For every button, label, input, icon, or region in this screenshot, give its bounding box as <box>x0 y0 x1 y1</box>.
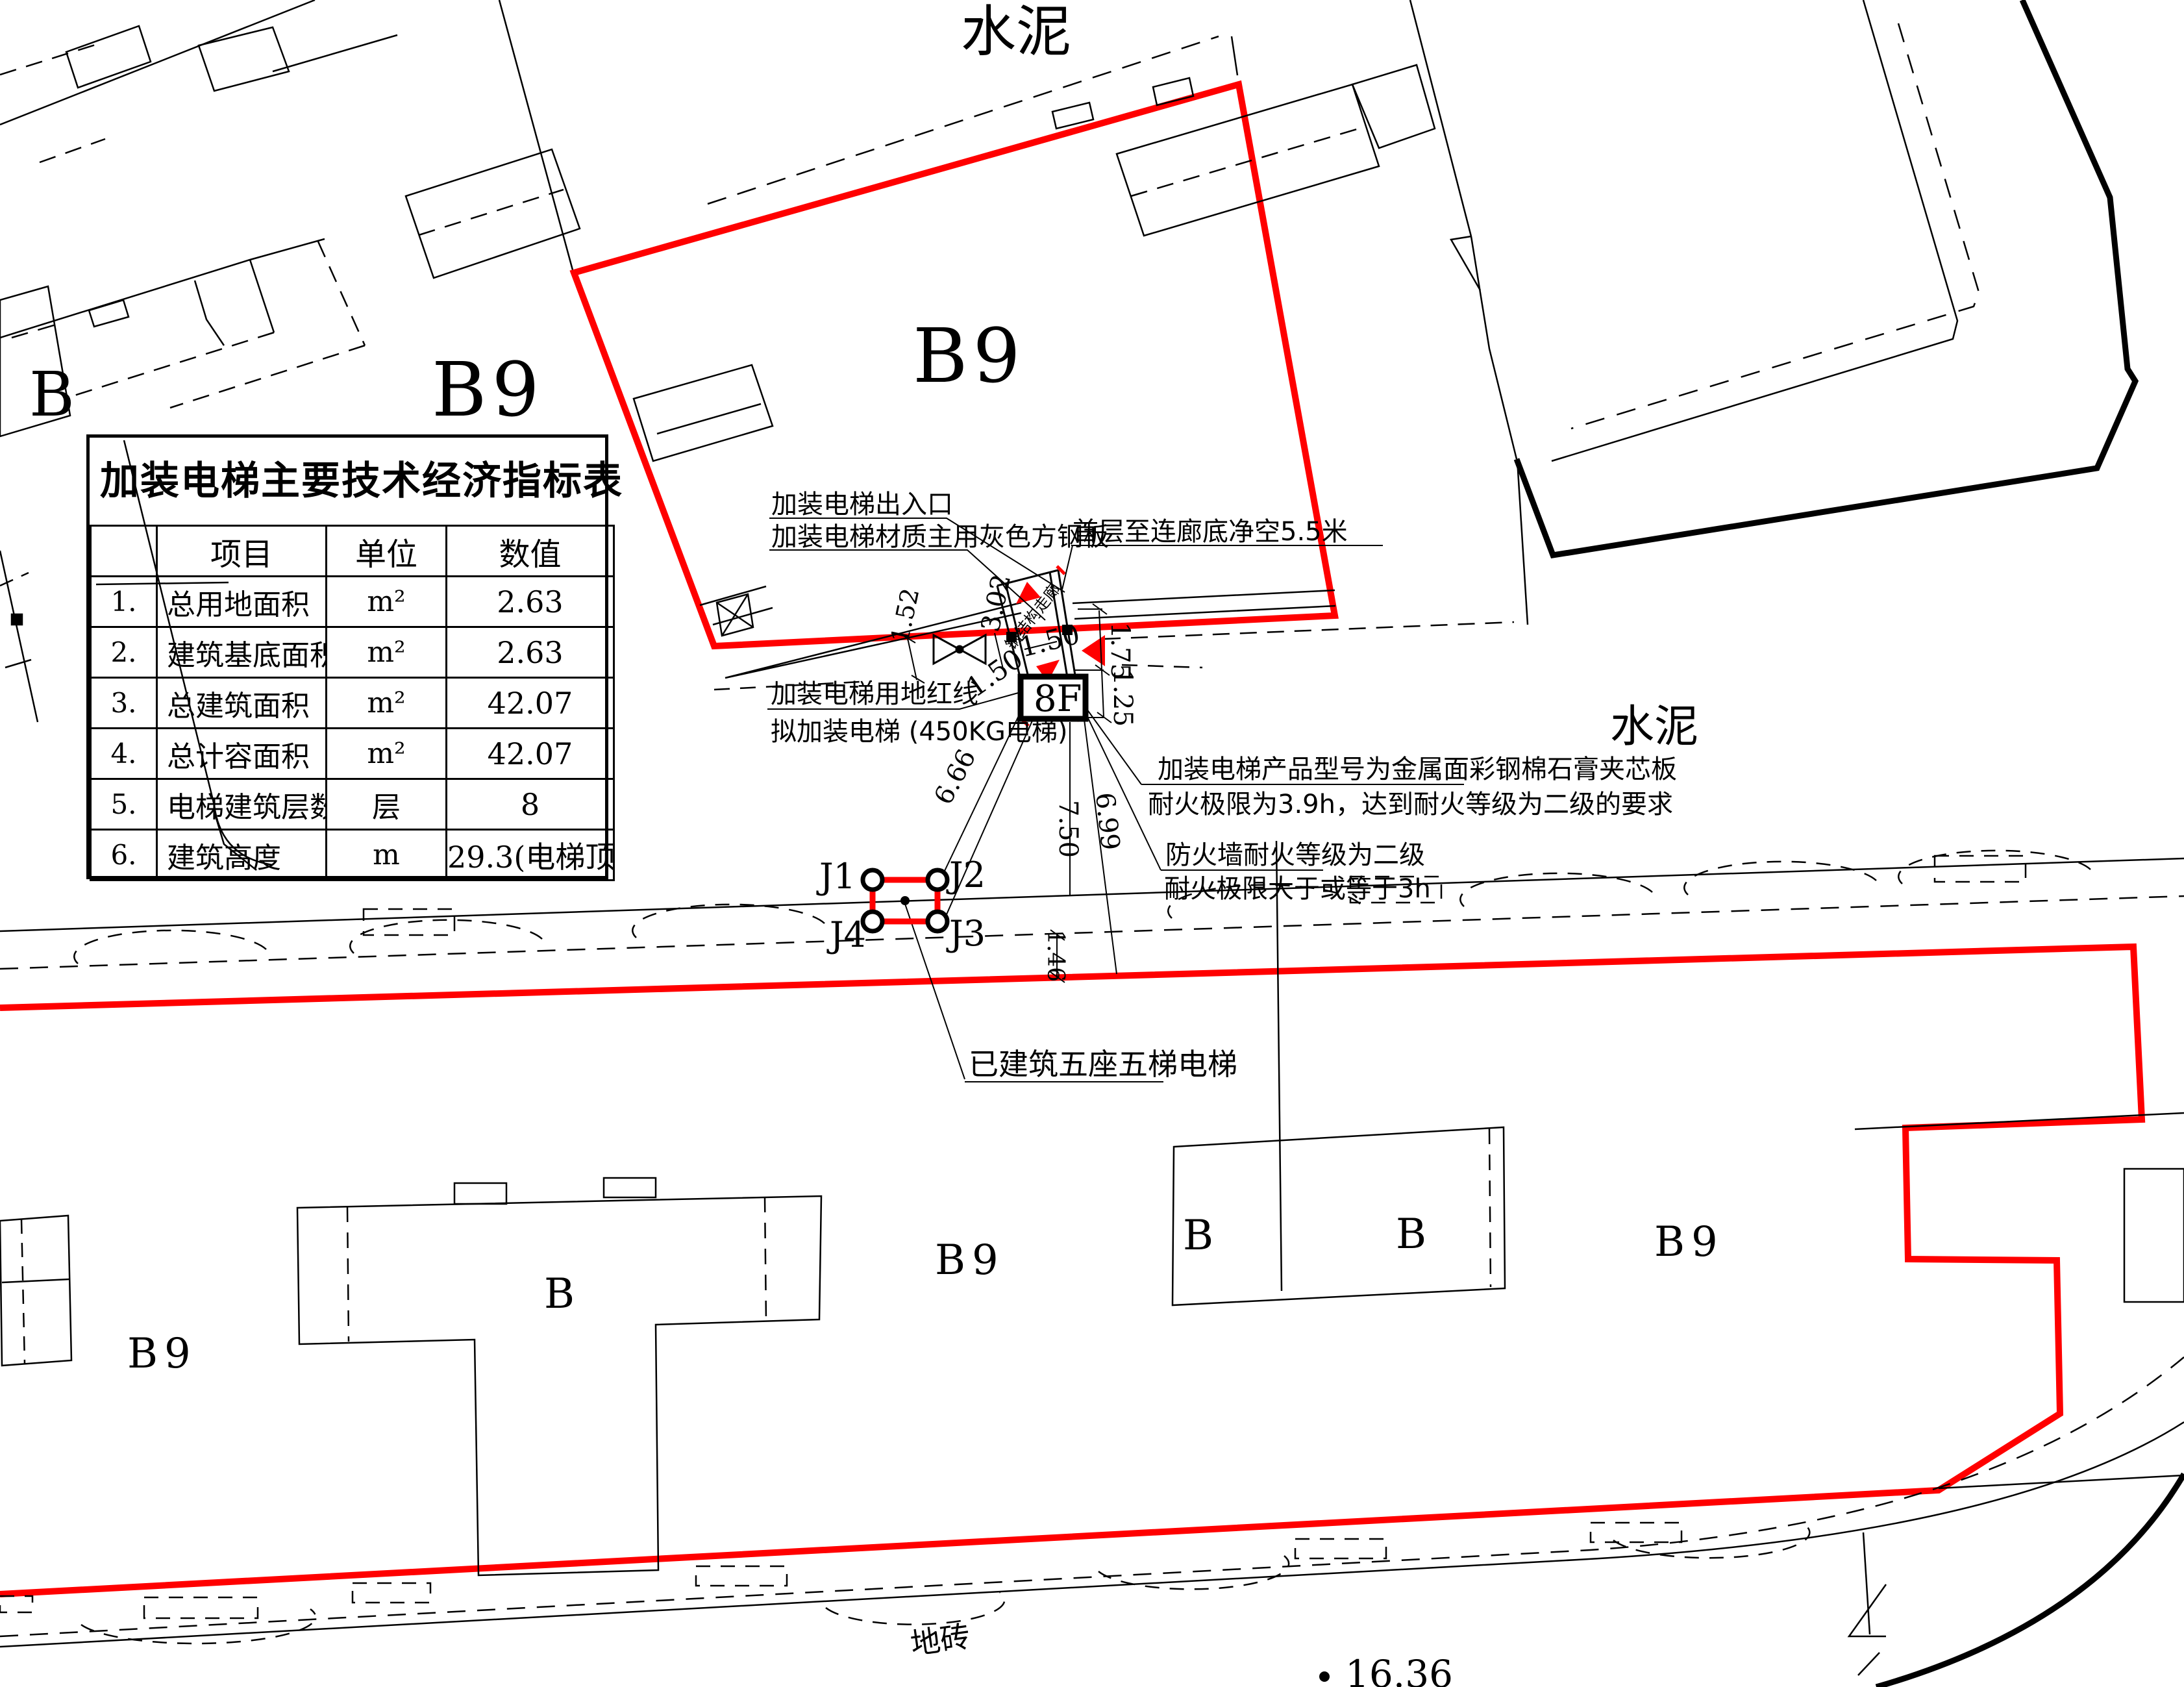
header-item: 项目 <box>157 526 327 577</box>
row6-no: 6. <box>91 830 157 881</box>
label-b-t-building: B <box>544 1270 575 1318</box>
row1-item: 总用地面积 <box>157 577 327 627</box>
row4-unit: m² <box>327 729 447 779</box>
buildings-bottom <box>0 841 2184 1575</box>
table-header-row: 项目 单位 数值 <box>91 526 614 577</box>
table-row: 3. 总建筑面积 m² 42.07 <box>91 678 614 729</box>
junction-labels: J1 J2 J3 J4 <box>816 855 986 955</box>
row5-item: 电梯建筑层数 <box>157 779 327 830</box>
annot-existing: 已建筑五座五梯电梯 <box>969 1047 1237 1082</box>
row1-unit: m² <box>327 577 447 627</box>
dim-7-50: 7.50 <box>1053 800 1083 858</box>
annotation-texts: 加装电梯出入口 加装电梯材质主用灰色方钢板 首层至连廊底净空5.5米 加装电梯用… <box>771 490 1677 1082</box>
annot-firewall-1: 防火墙耐火等级为二级 <box>1165 840 1425 870</box>
row2-no: 2. <box>91 627 157 678</box>
label-cement-top: 水泥 <box>961 0 1071 64</box>
dim-1-46: 1.46 <box>1042 930 1069 982</box>
dim-1-25: 1.25 <box>1108 669 1137 727</box>
dim-6-66: 6.66 <box>928 744 982 809</box>
label-b9-bottom-right: B9 <box>1654 1218 1724 1266</box>
label-j4: J4 <box>826 914 866 955</box>
annot-clearance: 首层至连廊底净空5.5米 <box>1073 517 1348 547</box>
label-spot-elevation: 16.36 <box>1345 1652 1453 1687</box>
indicator-table: 加装电梯主要技术经济指标表 项目 单位 数值 1. 总用地面积 m² 2.63 … <box>86 434 608 879</box>
row6-value: 29.3(电梯顶) <box>447 830 614 881</box>
label-b-topleft: B <box>29 359 75 431</box>
row3-unit: m² <box>327 678 447 729</box>
road-lower <box>0 1357 2184 1687</box>
header-value: 数值 <box>447 526 614 577</box>
table-row: 5. 电梯建筑层数 层 8 <box>91 779 614 830</box>
row4-value: 42.07 <box>447 729 614 779</box>
row6-unit: m <box>327 830 447 881</box>
label-floor-tile: 地砖 <box>908 1619 973 1662</box>
row1-value: 2.63 <box>447 577 614 627</box>
annot-product-1: 加装电梯产品型号为金属面彩钢棉石膏夹芯板 <box>1158 755 1677 784</box>
row2-unit: m² <box>327 627 447 678</box>
header-unit: 单位 <box>327 526 447 577</box>
junction-rectangle <box>863 870 947 931</box>
row3-item: 总建筑面积 <box>157 678 327 729</box>
row6-item: 建筑高度 <box>157 830 327 881</box>
dim-3-02: 3.02 <box>976 571 1017 634</box>
table-row: 1. 总用地面积 m² 2.63 <box>91 577 614 627</box>
row5-unit: 层 <box>327 779 447 830</box>
row3-no: 3. <box>91 678 157 729</box>
row5-value: 8 <box>447 779 614 830</box>
row2-item: 建筑基底面积 <box>157 627 327 678</box>
indicator-table-title: 加装电梯主要技术经济指标表 <box>90 438 605 525</box>
label-cement-right: 水泥 <box>1610 701 1698 753</box>
label-j2: J2 <box>946 855 986 895</box>
site-plan-page: 钢结构走廊 8F <box>0 0 2184 1687</box>
spot-elevation-dot <box>1319 1671 1330 1682</box>
label-b9-bottomleft: B9 <box>127 1330 197 1378</box>
table-row: 6. 建筑高度 m 29.3(电梯顶) <box>91 830 614 881</box>
row2-value: 2.63 <box>447 627 614 678</box>
row4-no: 4. <box>91 729 157 779</box>
elevator-core-label: 8F <box>1034 678 1082 720</box>
building-top-right <box>1410 0 2135 555</box>
label-j3: J3 <box>946 913 986 954</box>
annot-proposed: 拟加装电梯 (450KG电梯) <box>771 717 1068 747</box>
table-row: 2. 建筑基底面积 m² 2.63 <box>91 627 614 678</box>
buildings-top-center <box>634 36 1528 690</box>
red-parcel-boundary-bottom <box>0 947 2142 1594</box>
label-b9-topleft: B9 <box>432 347 545 434</box>
row4-item: 总计容面积 <box>157 729 327 779</box>
row3-value: 42.07 <box>447 678 614 729</box>
annot-entrance: 加装电梯出入口 <box>771 490 953 519</box>
label-b-bottom-2: B <box>1396 1210 1426 1258</box>
table-row: 4. 总计容面积 m² 42.07 <box>91 729 614 779</box>
row5-no: 5. <box>91 779 157 830</box>
label-b9-bottom-center: B9 <box>935 1236 1005 1284</box>
annot-product-2: 耐火极限为3.9h，达到耐火等级为二级的要求 <box>1148 790 1673 819</box>
annot-red-line: 加装电梯用地红线 <box>771 679 978 709</box>
label-b9-topcenter: B9 <box>913 313 1026 400</box>
annot-material: 加装电梯材质主用灰色方钢板 <box>771 522 1109 552</box>
label-j1: J1 <box>816 856 856 897</box>
dim-6-99: 6.99 <box>1089 791 1125 851</box>
road-upper <box>0 858 2184 1594</box>
wall-section-symbol <box>934 635 986 664</box>
annot-firewall-2: 耐火极限大于或等于3h <box>1164 874 1431 904</box>
label-b-bottom-1: B <box>1183 1212 1213 1260</box>
row1-no: 1. <box>91 577 157 627</box>
